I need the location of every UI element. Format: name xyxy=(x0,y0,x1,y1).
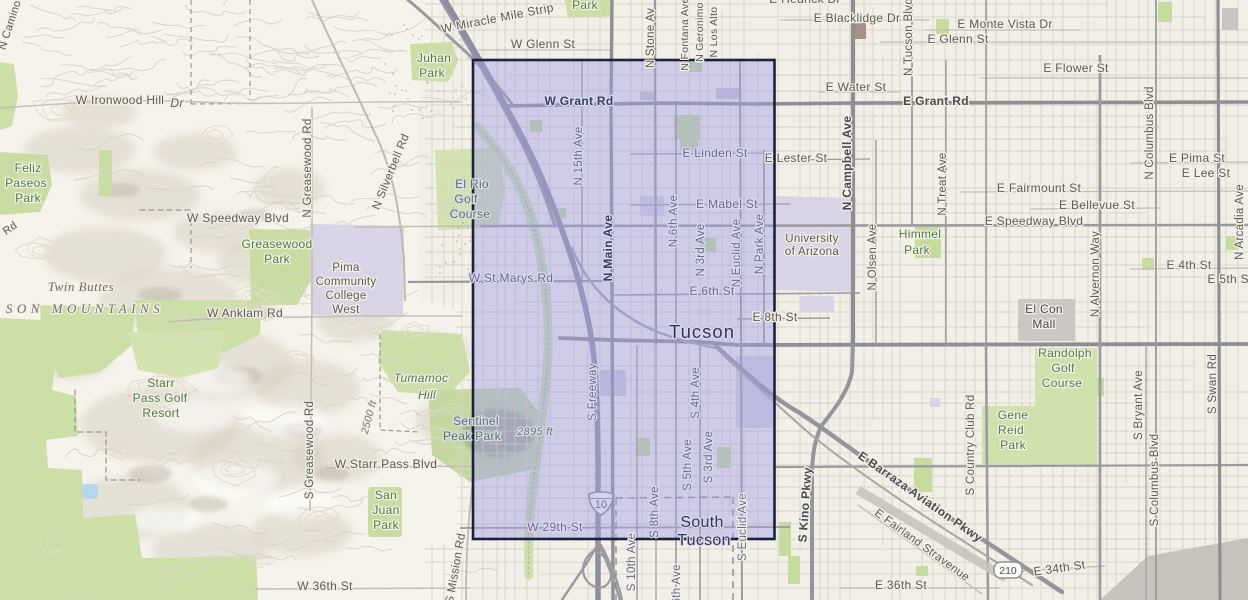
svg-text:W 29th St: W 29th St xyxy=(527,520,583,534)
svg-text:Sentinel: Sentinel xyxy=(453,414,499,428)
svg-text:E 8th St: E 8th St xyxy=(752,310,797,324)
svg-text:Feliz: Feliz xyxy=(15,161,42,175)
svg-text:S 4th Ave: S 4th Ave xyxy=(690,367,702,419)
svg-text:W Ironwood Hill: W Ironwood Hill xyxy=(76,93,165,107)
svg-text:Park: Park xyxy=(904,243,931,257)
svg-text:W Anklam Rd: W Anklam Rd xyxy=(207,306,283,320)
svg-text:N Euclid Ave: N Euclid Ave xyxy=(731,219,743,288)
svg-text:Juhan: Juhan xyxy=(417,51,451,65)
svg-text:N Stone Av: N Stone Av xyxy=(645,8,657,68)
svg-text:S 5th Ave: S 5th Ave xyxy=(682,439,694,491)
svg-text:E Lee St: E Lee St xyxy=(1182,166,1231,180)
svg-text:210: 210 xyxy=(999,565,1017,577)
svg-text:N Tucson Blvd: N Tucson Blvd xyxy=(903,0,915,76)
svg-text:N Main Ave: N Main Ave xyxy=(601,215,615,282)
svg-text:N Treat Ave: N Treat Ave xyxy=(937,152,949,215)
svg-text:E 5th St: E 5th St xyxy=(1207,272,1248,286)
svg-text:S 3rd Ave: S 3rd Ave xyxy=(703,431,715,483)
svg-text:W Starr Pass Blvd: W Starr Pass Blvd xyxy=(335,457,437,471)
svg-text:Pass Golf: Pass Golf xyxy=(133,391,188,405)
svg-text:E Pima St: E Pima St xyxy=(1169,151,1225,165)
svg-text:S Bryant Ave: S Bryant Ave xyxy=(1133,370,1145,440)
svg-text:Community: Community xyxy=(316,276,377,288)
svg-text:Park: Park xyxy=(1000,438,1027,452)
svg-text:W St Marys Rd: W St Marys Rd xyxy=(469,271,554,285)
svg-text:Peak Park: Peak Park xyxy=(443,429,502,443)
svg-text:Twin Buttes: Twin Buttes xyxy=(48,279,114,294)
svg-text:E Monte Vista Dr: E Monte Vista Dr xyxy=(957,17,1052,31)
svg-text:of Arizona: of Arizona xyxy=(785,246,839,258)
svg-text:E Blacklidge Dr: E Blacklidge Dr xyxy=(814,11,901,25)
svg-text:Park: Park xyxy=(572,0,599,12)
svg-text:S Euclid Ave: S Euclid Ave xyxy=(737,493,749,561)
svg-text:Pima: Pima xyxy=(332,262,360,274)
svg-text:Greasewood: Greasewood xyxy=(241,237,312,251)
svg-text:Mall: Mall xyxy=(1032,317,1055,331)
svg-text:N Greasewood Rd: N Greasewood Rd xyxy=(302,118,314,217)
svg-text:N Los Alto: N Los Alto xyxy=(708,7,720,58)
svg-text:Himmel: Himmel xyxy=(899,227,941,241)
svg-text:E Fairmount St: E Fairmount St xyxy=(997,181,1082,195)
svg-text:W 36th St: W 36th St xyxy=(297,579,353,593)
svg-text:College: College xyxy=(325,290,366,302)
svg-text:E Flower St: E Flower St xyxy=(1043,61,1109,75)
svg-text:E Grant Rd: E Grant Rd xyxy=(903,94,969,108)
svg-text:W Grant Rd: W Grant Rd xyxy=(545,94,614,108)
svg-text:SON MOUNTAINS: SON MOUNTAINS xyxy=(6,301,164,316)
svg-text:N Campbell Ave: N Campbell Ave xyxy=(840,116,854,211)
svg-text:S 6th Ave: S 6th Ave xyxy=(671,564,683,600)
svg-text:E Bellevue St: E Bellevue St xyxy=(1059,198,1135,212)
svg-text:N Arcadia Ave: N Arcadia Ave xyxy=(1234,184,1246,260)
svg-text:Course: Course xyxy=(450,207,491,221)
svg-text:Tumamoc: Tumamoc xyxy=(394,371,449,385)
svg-text:Dr: Dr xyxy=(170,96,184,110)
svg-text:S 10th Ave: S 10th Ave xyxy=(626,533,638,591)
svg-text:N Alvernon Way: N Alvernon Way xyxy=(1090,231,1102,317)
svg-text:El Rio: El Rio xyxy=(455,177,489,191)
svg-text:N Geronimo: N Geronimo xyxy=(694,2,706,62)
svg-text:Starr: Starr xyxy=(147,376,175,390)
svg-text:Reid: Reid xyxy=(998,423,1024,437)
svg-text:Hill: Hill xyxy=(418,388,436,402)
svg-text:N 15th Ave: N 15th Ave xyxy=(573,126,585,185)
svg-text:Paseos: Paseos xyxy=(5,176,47,190)
svg-text:Gene: Gene xyxy=(998,408,1029,422)
svg-text:E Lester St: E Lester St xyxy=(765,151,828,165)
svg-text:E Water St: E Water St xyxy=(826,80,887,94)
svg-text:E Glenn St: E Glenn St xyxy=(927,32,988,46)
svg-text:N 6th Ave: N 6th Ave xyxy=(668,195,680,247)
svg-text:E 6th St: E 6th St xyxy=(689,284,734,298)
svg-text:W Glenn St: W Glenn St xyxy=(511,37,576,51)
svg-text:E 36th St: E 36th St xyxy=(875,578,927,592)
svg-text:W Speedway Blvd: W Speedway Blvd xyxy=(187,211,289,225)
svg-text:S Freeway: S Freeway xyxy=(587,363,599,421)
svg-text:S Columbus Blvd: S Columbus Blvd xyxy=(1149,434,1161,527)
svg-text:Juan: Juan xyxy=(372,503,399,517)
svg-text:Park: Park xyxy=(264,252,291,266)
svg-text:N Olsen Ave: N Olsen Ave xyxy=(867,223,879,290)
svg-text:S Swan Rd: S Swan Rd xyxy=(1207,354,1219,414)
svg-text:South: South xyxy=(680,514,723,531)
svg-text:E Speedway Blvd: E Speedway Blvd xyxy=(985,214,1084,228)
svg-text:Tucson: Tucson xyxy=(677,532,731,549)
svg-text:S Country Club Rd: S Country Club Rd xyxy=(965,395,977,496)
svg-text:Tucson: Tucson xyxy=(669,321,735,342)
svg-text:E Mabel St: E Mabel St xyxy=(696,197,758,211)
svg-text:West: West xyxy=(332,304,360,316)
svg-text:Randolph: Randolph xyxy=(1038,346,1092,360)
svg-text:Golf: Golf xyxy=(1051,361,1075,375)
svg-text:Park: Park xyxy=(419,66,446,80)
svg-text:N Columbus Blvd: N Columbus Blvd xyxy=(1144,86,1156,179)
svg-text:Park: Park xyxy=(373,518,400,532)
svg-text:N 3rd Ave: N 3rd Ave xyxy=(695,224,707,277)
svg-text:E 4th St: E 4th St xyxy=(1166,258,1211,272)
svg-text:San: San xyxy=(375,488,397,502)
svg-text:2895 ft: 2895 ft xyxy=(516,426,553,438)
svg-text:Resort: Resort xyxy=(142,406,180,420)
svg-text:Park: Park xyxy=(15,191,42,205)
svg-text:Golf: Golf xyxy=(454,192,478,206)
svg-text:University: University xyxy=(785,233,838,245)
svg-text:E Linden St: E Linden St xyxy=(682,146,748,160)
svg-text:Course: Course xyxy=(1042,376,1083,390)
svg-text:S Greasewood Rd: S Greasewood Rd xyxy=(304,401,316,499)
svg-text:N Fontana Ave: N Fontana Ave xyxy=(679,0,691,71)
svg-text:N Park Ave: N Park Ave xyxy=(754,214,766,274)
svg-text:S 8th Ave: S 8th Ave xyxy=(649,486,661,538)
svg-text:El Con: El Con xyxy=(1025,302,1063,316)
svg-text:E Hedrick Dr: E Hedrick Dr xyxy=(769,0,841,6)
